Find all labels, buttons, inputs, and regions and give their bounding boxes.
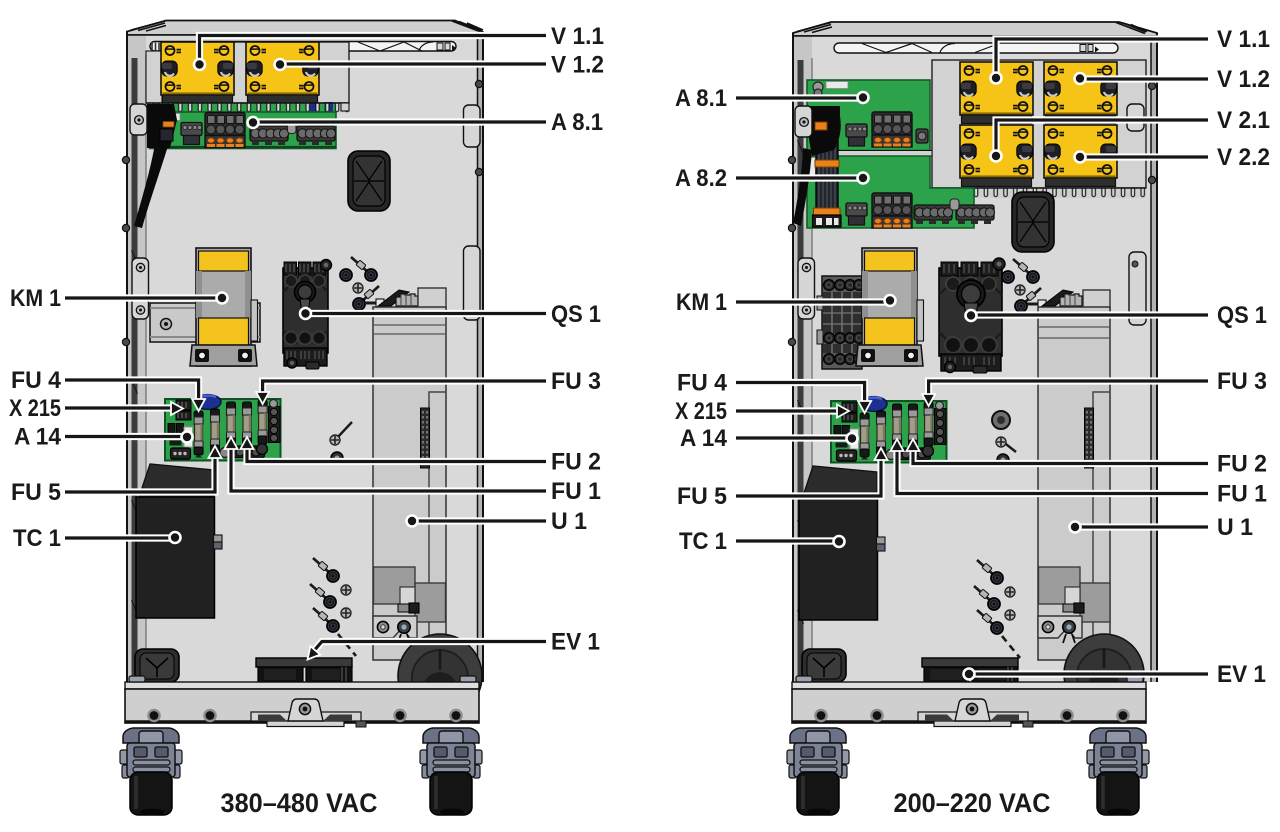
svg-text:QS 1: QS 1 (1217, 302, 1267, 329)
svg-text:FU 4: FU 4 (11, 367, 62, 394)
svg-text:EV 1: EV 1 (1217, 661, 1266, 688)
svg-text:FU 1: FU 1 (1217, 481, 1267, 508)
svg-text:U 1: U 1 (1217, 514, 1253, 541)
svg-text:A 8.2: A 8.2 (675, 165, 727, 192)
svg-text:TC 1: TC 1 (679, 528, 727, 555)
svg-text:KM 1: KM 1 (676, 289, 727, 316)
svg-text:U 1: U 1 (551, 508, 587, 535)
svg-text:V 1.2: V 1.2 (1217, 66, 1270, 93)
svg-text:A 8.1: A 8.1 (551, 109, 603, 136)
svg-text:A 8.1: A 8.1 (675, 85, 727, 112)
svg-text:V 2.1: V 2.1 (1217, 107, 1270, 134)
svg-text:V 2.2: V 2.2 (1217, 144, 1270, 171)
svg-text:V 1.1: V 1.1 (551, 23, 604, 50)
svg-text:FU 5: FU 5 (677, 483, 727, 510)
svg-text:EV 1: EV 1 (551, 629, 600, 656)
svg-text:X 215: X 215 (675, 398, 727, 425)
svg-text:FU 3: FU 3 (1217, 368, 1267, 395)
svg-text:V 1.2: V 1.2 (551, 52, 604, 79)
svg-text:FU 2: FU 2 (551, 449, 601, 476)
svg-text:FU 4: FU 4 (677, 370, 728, 397)
svg-text:FU 3: FU 3 (551, 368, 601, 395)
svg-text:QS 1: QS 1 (551, 301, 601, 328)
svg-text:FU 5: FU 5 (11, 479, 61, 506)
svg-text:A 14: A 14 (680, 425, 728, 452)
svg-text:FU 1: FU 1 (551, 478, 601, 505)
svg-text:TC 1: TC 1 (13, 525, 61, 552)
svg-text:X 215: X 215 (9, 395, 61, 422)
svg-text:380–480 VAC: 380–480 VAC (221, 788, 378, 818)
svg-text:V 1.1: V 1.1 (1217, 26, 1270, 53)
svg-text:KM 1: KM 1 (10, 285, 61, 312)
svg-text:A 14: A 14 (14, 424, 62, 451)
svg-text:FU 2: FU 2 (1217, 451, 1267, 478)
svg-text:200–220 VAC: 200–220 VAC (894, 788, 1051, 818)
